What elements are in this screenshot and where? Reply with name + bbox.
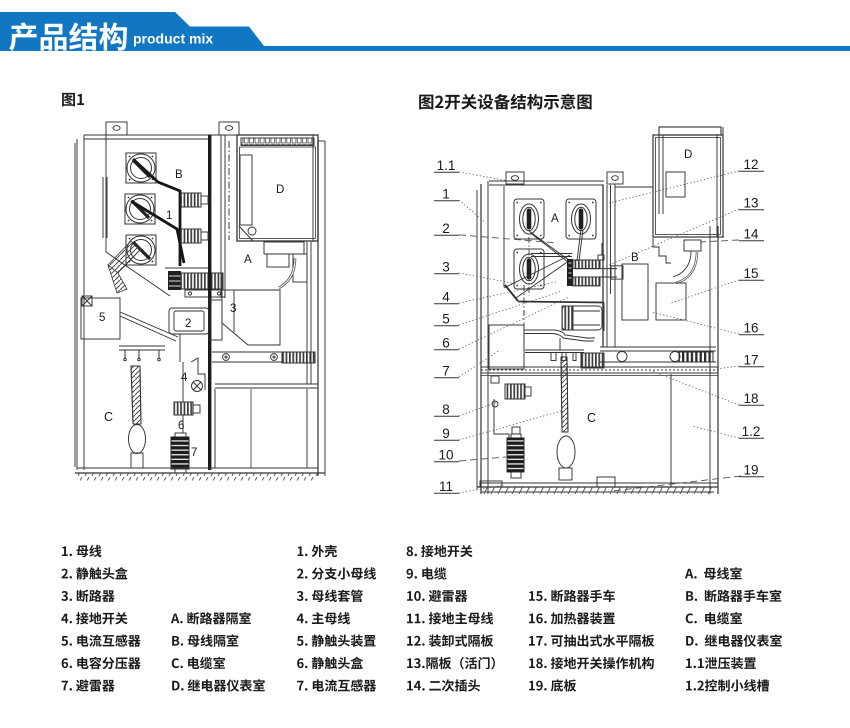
svg-text:1.1: 1.1 — [437, 158, 456, 173]
svg-text:A: A — [551, 213, 559, 225]
svg-text:8: 8 — [442, 402, 450, 417]
svg-text:17: 17 — [743, 353, 758, 368]
svg-text:12: 12 — [743, 157, 758, 172]
svg-text:2: 2 — [442, 221, 450, 236]
svg-text:6: 6 — [442, 336, 450, 351]
svg-text:1: 1 — [166, 210, 172, 222]
svg-text:6: 6 — [178, 420, 184, 432]
svg-text:13: 13 — [743, 196, 758, 211]
svg-text:5: 5 — [442, 312, 450, 327]
svg-text:1.2: 1.2 — [742, 424, 761, 439]
svg-text:7: 7 — [442, 364, 450, 379]
svg-text:3: 3 — [442, 260, 450, 275]
svg-text:C: C — [104, 410, 113, 424]
svg-text:B: B — [175, 169, 183, 181]
svg-text:product mix: product mix — [133, 31, 213, 47]
svg-text:16: 16 — [743, 321, 758, 336]
svg-text:4: 4 — [181, 372, 188, 384]
svg-text:11: 11 — [439, 479, 453, 494]
svg-text:14: 14 — [743, 227, 759, 242]
svg-text:19: 19 — [743, 463, 758, 478]
svg-text:15: 15 — [743, 266, 758, 281]
svg-text:3: 3 — [230, 303, 236, 315]
svg-text:2: 2 — [185, 318, 191, 330]
svg-text:5: 5 — [99, 312, 105, 324]
svg-text:A: A — [244, 254, 252, 266]
svg-text:D: D — [684, 149, 692, 161]
svg-text:18: 18 — [743, 391, 758, 406]
svg-text:4: 4 — [442, 290, 450, 305]
svg-text:9: 9 — [442, 426, 450, 441]
svg-text:10: 10 — [438, 448, 453, 463]
svg-text:D: D — [276, 184, 284, 196]
svg-text:C: C — [587, 411, 596, 425]
svg-text:7: 7 — [191, 447, 197, 459]
svg-text:1: 1 — [442, 187, 450, 202]
